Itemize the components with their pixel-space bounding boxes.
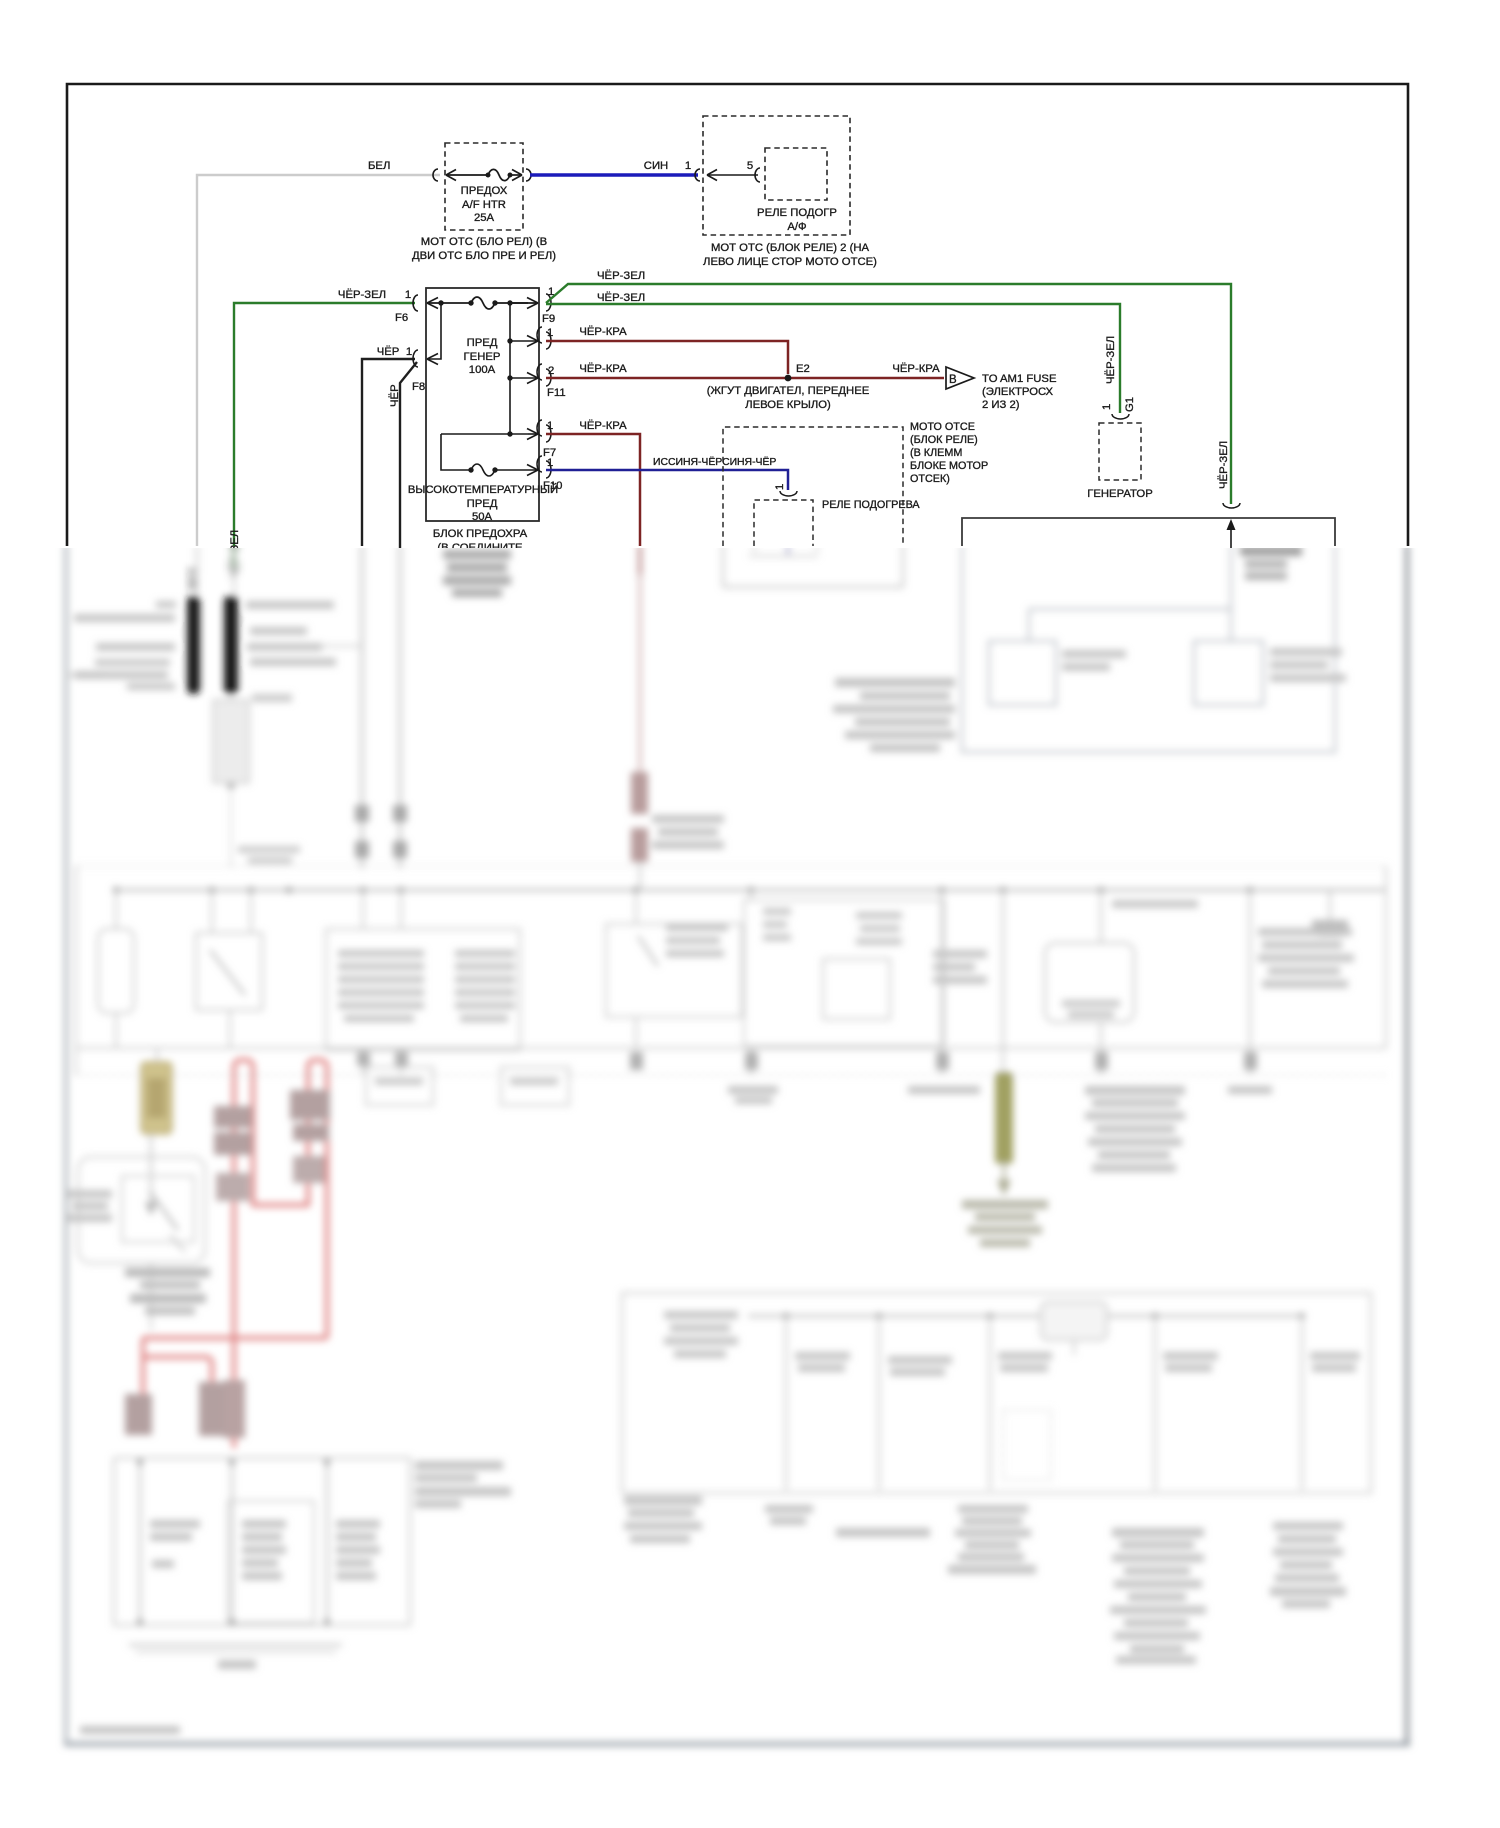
- svg-text:1: 1: [406, 346, 412, 358]
- svg-text:F6: F6: [395, 312, 408, 324]
- svg-text:ЧЁР-ЗЕЛ: ЧЁР-ЗЕЛ: [1105, 336, 1117, 384]
- svg-text:1: 1: [1101, 404, 1113, 410]
- svg-text:5: 5: [747, 160, 753, 172]
- svg-text:F9: F9: [542, 313, 555, 325]
- svg-text:МОТ ОТС (БЛОК РЕЛЕ) 2 (НА: МОТ ОТС (БЛОК РЕЛЕ) 2 (НА: [711, 242, 870, 254]
- svg-text:ПРЕД: ПРЕД: [467, 337, 498, 349]
- svg-text:F7: F7: [543, 447, 556, 459]
- svg-text:1: 1: [547, 420, 553, 432]
- svg-text:2 ИЗ 2): 2 ИЗ 2): [982, 399, 1020, 411]
- svg-text:100А: 100А: [469, 364, 496, 376]
- svg-text:A/F HTR: A/F HTR: [462, 199, 506, 211]
- svg-text:F8: F8: [412, 381, 425, 393]
- svg-text:ЛЕВОЕ КРЫЛО): ЛЕВОЕ КРЫЛО): [745, 399, 831, 411]
- svg-text:БЛОК ПРЕДОХРА: БЛОК ПРЕДОХРА: [433, 528, 528, 540]
- svg-text:БЕЛ: БЕЛ: [368, 160, 390, 172]
- svg-text:50А: 50А: [472, 511, 493, 523]
- svg-text:МОТ ОТС (БЛО РЕЛ) (В: МОТ ОТС (БЛО РЕЛ) (В: [421, 236, 547, 248]
- svg-text:ЛЕВО ЛИЦЕ СТОР МОТО ОТСЕ): ЛЕВО ЛИЦЕ СТОР МОТО ОТСЕ): [703, 256, 877, 268]
- svg-text:ГЕНЕР: ГЕНЕР: [464, 351, 501, 363]
- svg-text:(ЖГУТ ДВИГАТЕЛ, ПЕРЕДНЕЕ: (ЖГУТ ДВИГАТЕЛ, ПЕРЕДНЕЕ: [707, 385, 870, 397]
- svg-text:1: 1: [547, 327, 553, 339]
- svg-text:ЧЁР-КРА: ЧЁР-КРА: [579, 420, 627, 432]
- svg-text:1: 1: [774, 484, 786, 490]
- svg-text:G1: G1: [1124, 397, 1136, 412]
- svg-text:(В КЛЕММ: (В КЛЕММ: [910, 447, 962, 459]
- svg-text:ВЫСОКОТЕМПЕРАТУРНЫЙ: ВЫСОКОТЕМПЕРАТУРНЫЙ: [408, 483, 558, 496]
- svg-text:ЧЁР-ЗЕЛ: ЧЁР-ЗЕЛ: [597, 270, 645, 282]
- svg-text:РЕЛЕ ПОДОГРЕВА: РЕЛЕ ПОДОГРЕВА: [822, 499, 920, 511]
- svg-text:ОТСЕК): ОТСЕК): [910, 473, 950, 485]
- svg-text:ЧЁР-ЗЕЛ: ЧЁР-ЗЕЛ: [1218, 441, 1230, 489]
- svg-text:2: 2: [548, 365, 554, 377]
- svg-text:ЧЁР-КРА: ЧЁР-КРА: [579, 363, 627, 375]
- svg-text:ИССИНЯ-ЧЁРСИНЯ-ЧЁР: ИССИНЯ-ЧЁРСИНЯ-ЧЁР: [653, 456, 776, 468]
- svg-text:БЛОКЕ МОТОР: БЛОКЕ МОТОР: [910, 460, 988, 472]
- svg-text:ЧЁР-ЗЕЛ: ЧЁР-ЗЕЛ: [597, 292, 645, 304]
- svg-text:(БЛОК РЕЛЕ): (БЛОК РЕЛЕ): [910, 434, 978, 446]
- svg-text:25А: 25А: [474, 212, 495, 224]
- svg-text:ГЕНЕРАТОР: ГЕНЕРАТОР: [1087, 488, 1153, 500]
- svg-text:МОТО ОТСЕ: МОТО ОТСЕ: [910, 421, 975, 433]
- svg-text:А/Ф: А/Ф: [787, 221, 806, 233]
- svg-text:ПРЕДОХ: ПРЕДОХ: [461, 185, 508, 197]
- svg-text:B: B: [949, 374, 957, 386]
- svg-text:ЧЁР-ЗЕЛ: ЧЁР-ЗЕЛ: [338, 289, 386, 301]
- svg-text:1: 1: [405, 289, 411, 301]
- svg-text:ПРЕД: ПРЕД: [467, 498, 498, 510]
- svg-text:ЧЁР-КРА: ЧЁР-КРА: [892, 363, 940, 375]
- svg-text:ЧЁР: ЧЁР: [377, 346, 400, 358]
- svg-text:E2: E2: [796, 363, 810, 375]
- svg-text:РЕЛЕ ПОДОГР: РЕЛЕ ПОДОГР: [757, 207, 837, 219]
- svg-text:TO AM1 FUSE: TO AM1 FUSE: [982, 373, 1057, 385]
- svg-text:1: 1: [685, 160, 691, 172]
- svg-text:ЧЁР: ЧЁР: [389, 384, 401, 407]
- svg-text:ДВИ ОТС БЛО ПРЕ И РЕЛ): ДВИ ОТС БЛО ПРЕ И РЕЛ): [412, 250, 556, 262]
- svg-text:СИН: СИН: [644, 160, 668, 172]
- svg-text:(ЭЛЕКТРОСХ: (ЭЛЕКТРОСХ: [982, 386, 1054, 398]
- svg-text:F11: F11: [547, 387, 566, 399]
- svg-text:ЧЁР-КРА: ЧЁР-КРА: [579, 326, 627, 338]
